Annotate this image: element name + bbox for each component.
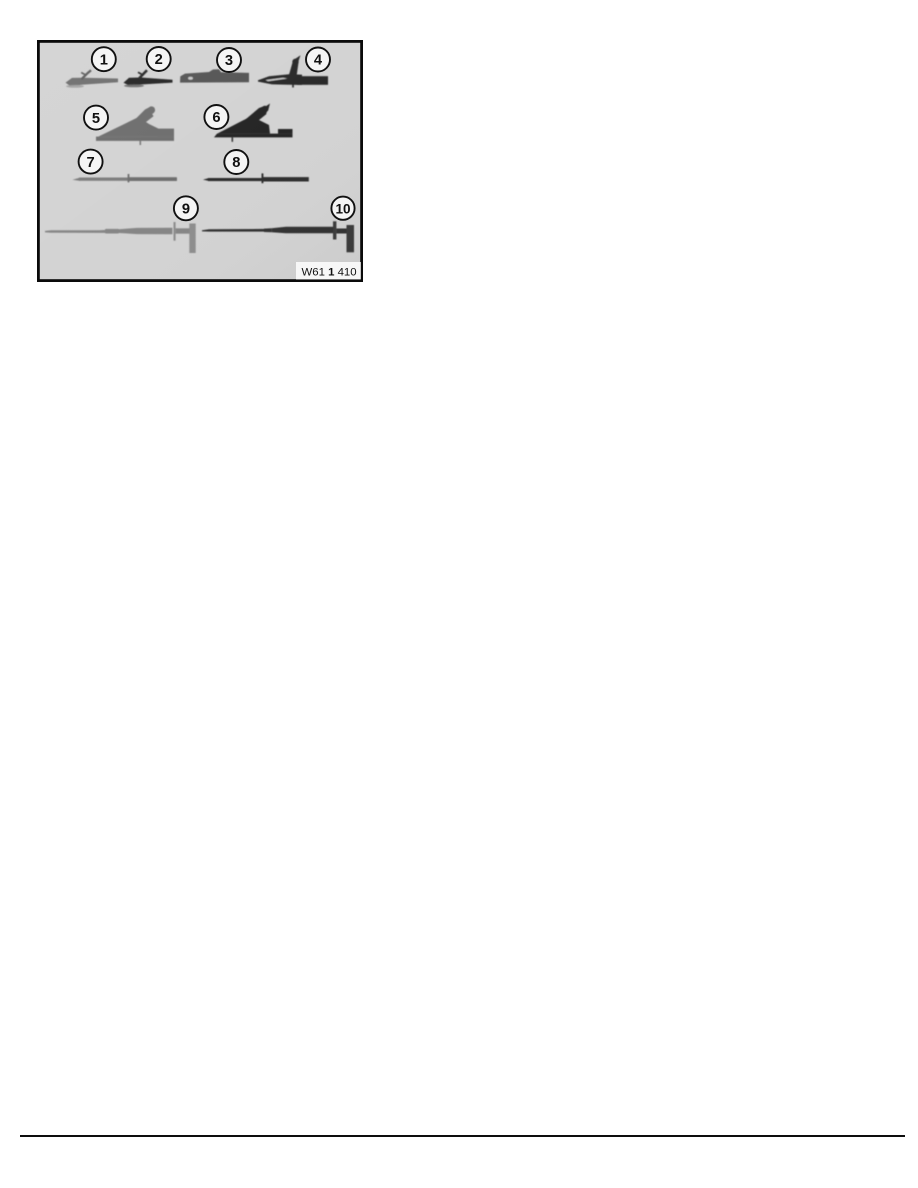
svg-text:1: 1 <box>100 52 108 68</box>
svg-text:8: 8 <box>232 155 240 171</box>
svg-text:2: 2 <box>155 52 163 68</box>
svg-text:4: 4 <box>314 53 323 69</box>
svg-text:W61 1 410: W61 1 410 <box>302 266 357 278</box>
svg-text:7: 7 <box>87 155 95 171</box>
svg-text:10: 10 <box>335 201 350 216</box>
svg-text:3: 3 <box>225 53 233 69</box>
svg-text:9: 9 <box>182 202 190 218</box>
svg-text:5: 5 <box>92 111 100 127</box>
svg-text:6: 6 <box>212 110 220 126</box>
